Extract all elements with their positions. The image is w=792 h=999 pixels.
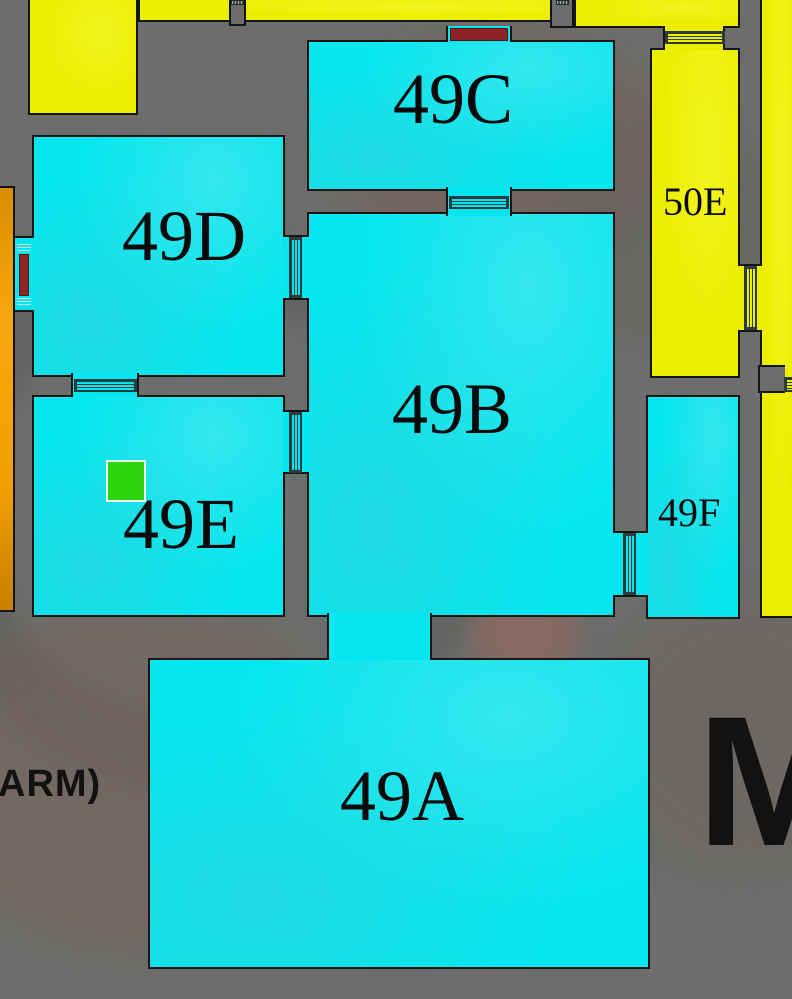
orange-corridor[interactable] [0, 186, 15, 612]
door-icon [556, 0, 569, 5]
door-icon [784, 377, 792, 392]
partial-text-arm: ARM) [0, 765, 101, 803]
door-icon [744, 266, 757, 330]
door-icon [289, 237, 302, 298]
door-frame-tick [17, 298, 31, 305]
door-icon [289, 412, 302, 473]
yellow-zone-top-band-right[interactable] [574, 0, 740, 28]
room-label-49E: 49E [123, 488, 239, 560]
room-label-50E: 50E [663, 182, 727, 222]
door-icon [231, 0, 244, 5]
room-label-49B: 49B [392, 373, 512, 445]
room-label-49F: 49F [658, 493, 720, 533]
wall-stub [758, 365, 785, 393]
door-icon [665, 31, 725, 44]
door-frame-tick [17, 244, 31, 251]
room-label-49A: 49A [340, 760, 464, 832]
room-label-49D: 49D [122, 200, 246, 272]
red-door-marker [19, 254, 29, 296]
door-icon [449, 196, 509, 209]
yellow-zone-top-left[interactable] [28, 0, 138, 115]
red-door-marker [450, 28, 508, 41]
passage-49B-49A [327, 613, 432, 660]
door-icon [623, 533, 636, 595]
door-icon [74, 379, 137, 392]
yellow-zone-right-strip[interactable] [760, 0, 792, 618]
floorplan-map: 49A 49B 49C 49D 49E 49F 50E ARM) M [0, 0, 792, 999]
yellow-zone-top-band-left[interactable] [138, 0, 574, 22]
room-label-49C: 49C [393, 63, 513, 135]
partial-letter-m: M [697, 690, 792, 875]
